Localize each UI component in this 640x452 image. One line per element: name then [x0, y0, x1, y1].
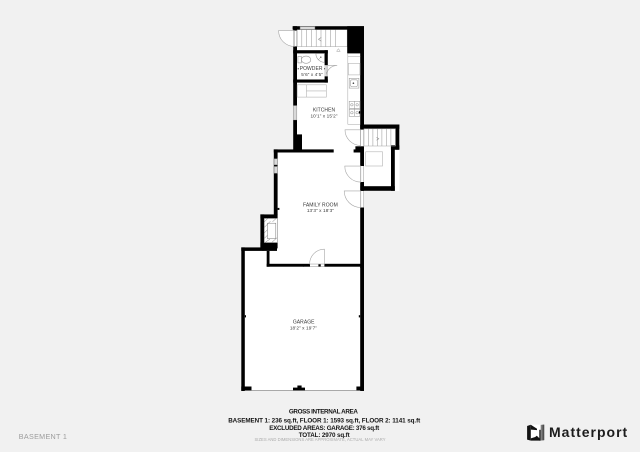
svg-text:13’3” x 18’3”: 13’3” x 18’3” — [307, 208, 334, 213]
svg-text:BASEMENT 1: 236 sq.ft, FLOOR 1: BASEMENT 1: 236 sq.ft, FLOOR 1: 1593 sq.… — [228, 417, 421, 424]
svg-text:BASEMENT 1: BASEMENT 1 — [19, 432, 67, 441]
svg-text:SIZES AND DIMENSIONS ARE APPRO: SIZES AND DIMENSIONS ARE APPROXIMATE, AC… — [255, 437, 386, 442]
svg-text:5’6” x 4’5”: 5’6” x 4’5” — [301, 72, 323, 77]
svg-text:10’1” x 15’2”: 10’1” x 15’2” — [310, 113, 337, 118]
svg-text:18’2” x 19’7”: 18’2” x 19’7” — [290, 325, 317, 330]
svg-text:GROSS INTERNAL AREA: GROSS INTERNAL AREA — [289, 408, 358, 415]
svg-text:Matterport: Matterport — [549, 424, 628, 440]
